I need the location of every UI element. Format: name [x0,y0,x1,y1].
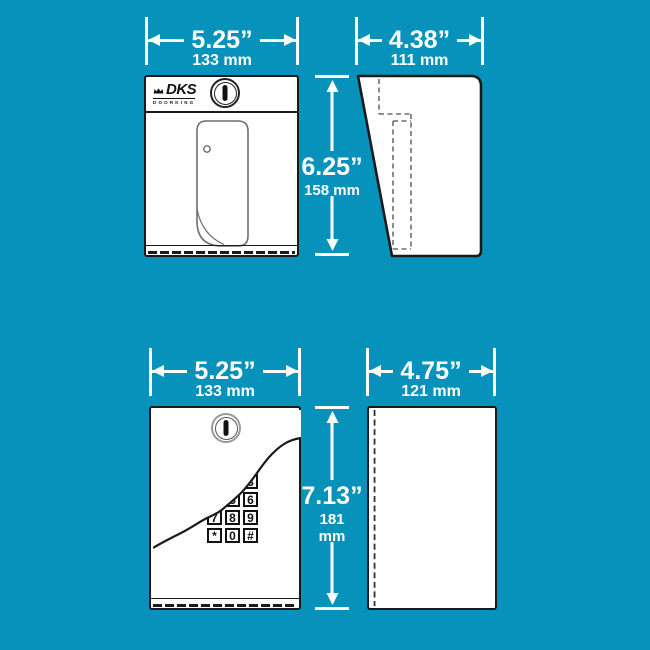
doorking-logo: DKS DOORKING [153,82,196,105]
unit2-front-view: 1 2 3 4 5 6 7 8 9 * 0 # [149,406,301,610]
arrow-up-icon [331,422,334,480]
vent-strip [151,598,299,608]
arrow-up-icon [331,91,334,151]
keyhole-icon [211,413,241,443]
unit1-side-view [355,72,487,260]
unit1-width-dimension: 5.25” 133 mm [145,17,299,67]
unit2-height-mm-value: 181 [298,512,366,529]
arrow-left-icon [148,39,184,42]
dimension-cap [315,406,349,409]
unit2-depth-mm: 121 mm [366,383,496,401]
brand-name: DKS [166,82,196,97]
arrow-right-icon [469,370,493,373]
unit2-width-dimension: 5.25” 133 mm [149,348,301,398]
dimension-cap [315,253,349,256]
arrow-right-icon [260,39,296,42]
unit2-width-mm: 133 mm [149,383,301,401]
card-reader [194,119,252,253]
keyhole-icon [210,78,240,108]
crown-icon [153,87,164,95]
dimension-cap [315,75,349,78]
led-indicator [204,146,210,152]
brand-subtitle: DOORKING [153,98,195,105]
unit1-front-view: DKS DOORKING [144,75,299,257]
unit2-depth-inches: 4.75” [400,359,461,384]
unit1-width-mm: 133 mm [145,52,299,70]
hidden-mount-line [369,408,495,608]
unit2-height-dimension: 7.13” 181 mm [298,406,366,610]
unit2-width-inches: 5.25” [194,359,255,384]
unit1-depth-inches: 4.38” [389,28,450,53]
arrow-down-icon [331,196,334,240]
arrow-left-icon [152,370,187,373]
unit1-depth-dimension: 4.38” 111 mm [355,17,484,67]
unit2-side-view [367,406,497,610]
unit2-depth-dimension: 4.75” 121 mm [366,348,496,398]
arrow-right-icon [457,39,481,42]
unit2-height-inches: 7.13” [298,484,366,509]
unit1-faceplate-header: DKS DOORKING [146,77,297,113]
arrow-left-icon [358,39,382,42]
vent-strip [146,245,297,255]
arrow-left-icon [369,370,393,373]
unit1-depth-mm: 111 mm [355,52,484,70]
arrow-right-icon [263,370,298,373]
arrow-down-icon [331,542,334,594]
dimension-diagram: 5.25” 133 mm 4.38” 111 mm DKS DOORKIN [0,0,650,650]
unit2-height-mm-unit: mm [298,529,366,546]
unit1-width-inches: 5.25” [191,28,252,53]
dimension-cap [315,607,349,610]
